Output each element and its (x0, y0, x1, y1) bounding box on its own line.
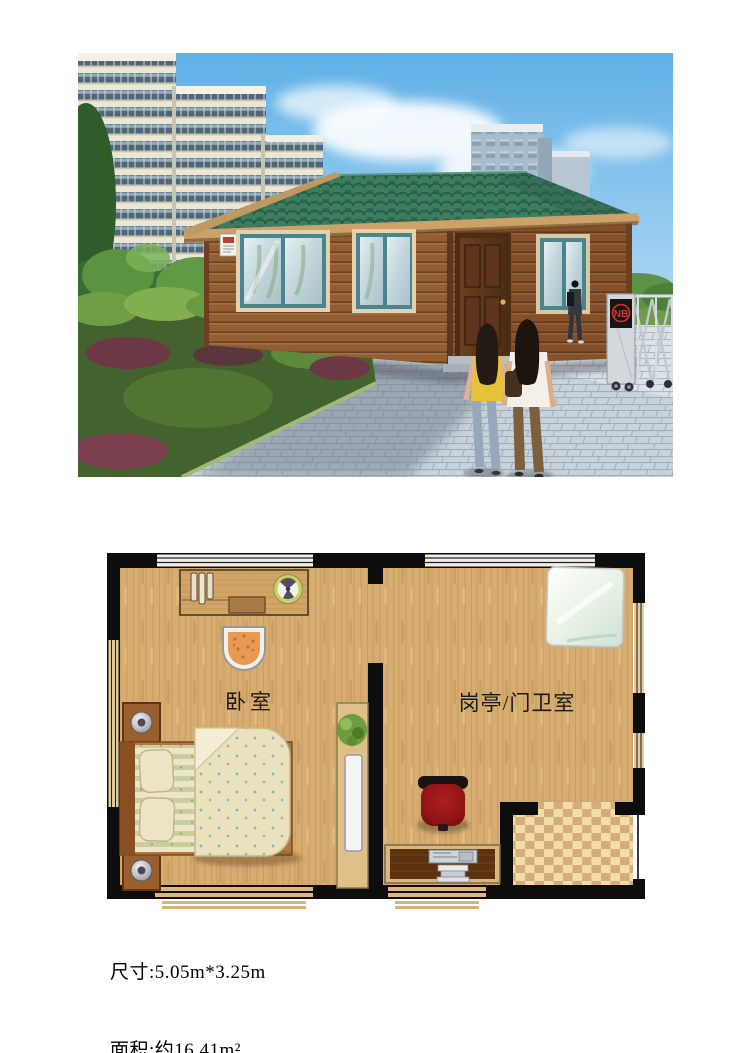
window-left (109, 640, 119, 807)
headboard (120, 742, 135, 855)
exterior-photo: NB (78, 53, 673, 477)
gate-sign-text: NB (614, 309, 628, 320)
tv-panel (345, 755, 362, 851)
window-right-a (634, 603, 644, 693)
wall-right-b (633, 693, 645, 733)
computer (429, 850, 477, 863)
desk-scroll (207, 573, 213, 599)
tv-cabinet (337, 703, 368, 888)
desk-scroll (191, 573, 197, 601)
guard-room-label: 岗亭/门卫室 (459, 691, 576, 715)
listing-page: NB (0, 0, 745, 1053)
divider-wall (368, 663, 383, 885)
window-top-guardroom (425, 555, 595, 567)
pillow (139, 797, 174, 841)
divider-wall-stub (368, 568, 383, 584)
bedroom-label: 卧室 (225, 690, 275, 714)
long-hair (476, 323, 498, 385)
corner-trim-middle (447, 225, 453, 365)
nightstand-bottom (123, 851, 160, 890)
double-bed (120, 728, 302, 866)
front-window-small (352, 229, 416, 313)
spec-area: 面积:约16.41m² (110, 1038, 266, 1053)
vestibule-wall-top-b (615, 802, 641, 815)
bedside-rug (223, 627, 265, 670)
floor-plan: 卧室 岗亭/门卫室 (107, 553, 645, 911)
office-chair (417, 776, 469, 833)
nightstand-top (123, 703, 160, 742)
spec-text: 尺寸:5.05m*3.25m 面积:约16.41m² (110, 908, 266, 1053)
chair-base (438, 824, 448, 831)
front-window-large (236, 230, 330, 312)
sign-plate (220, 234, 237, 256)
window-top-bedroom (157, 555, 313, 567)
corner-trim-left (204, 229, 209, 347)
wall-right-d (633, 879, 645, 899)
window-right-b (634, 733, 644, 768)
vestibule-wall-top-a (500, 802, 538, 815)
desk-scroll (199, 573, 205, 604)
side-window (536, 234, 590, 314)
dresser-desk (180, 570, 308, 615)
spec-dimensions: 尺寸:5.05m*3.25m (110, 960, 266, 986)
exterior-photo-canvas: NB (78, 53, 673, 477)
floor-plan-canvas: 卧室 岗亭/门卫室 (107, 553, 645, 911)
desk-stool (437, 865, 469, 882)
guard-desk (385, 845, 500, 883)
folding-mat (546, 567, 626, 649)
door-handle (500, 299, 505, 304)
desk-drawer (229, 597, 265, 613)
long-hair (515, 319, 539, 385)
pillow (139, 749, 174, 793)
wall-right-a (633, 553, 645, 603)
